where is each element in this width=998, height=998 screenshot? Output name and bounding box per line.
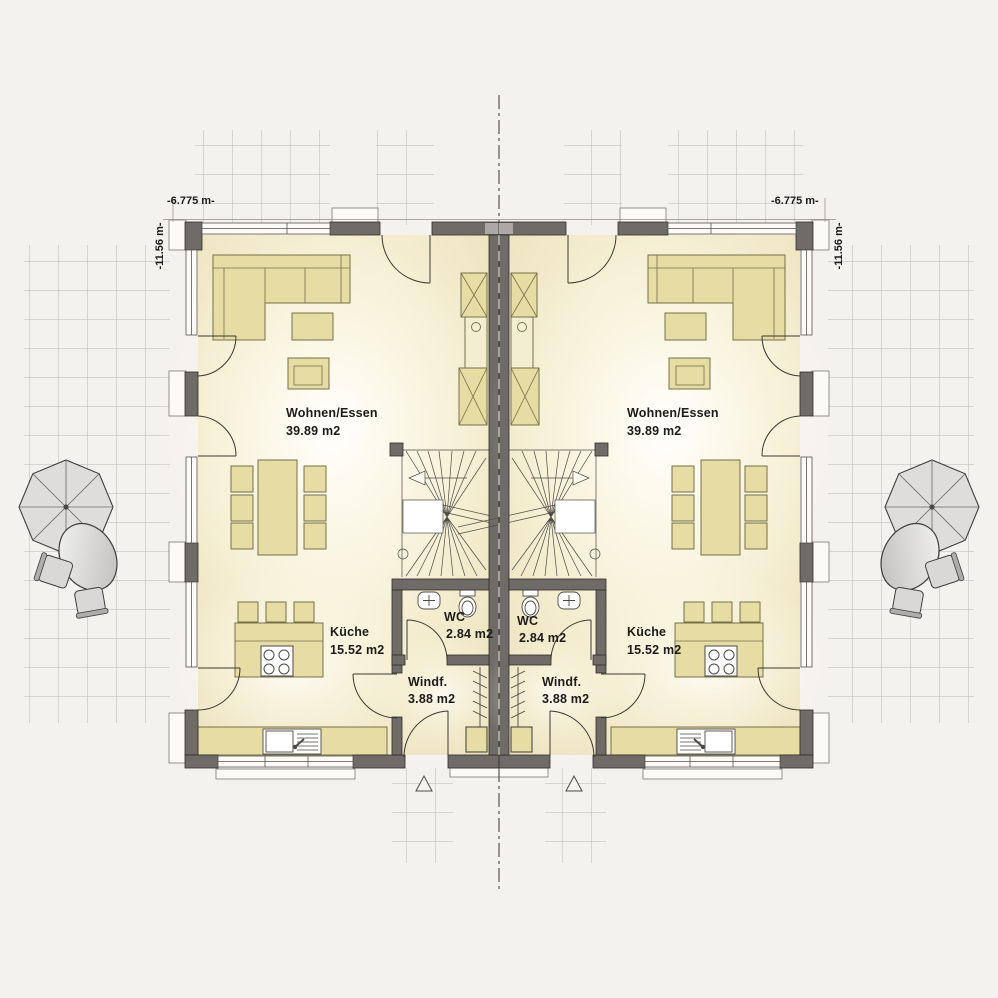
wall bbox=[353, 755, 405, 768]
wall-vestibule-side bbox=[392, 717, 402, 755]
dining-table bbox=[258, 460, 297, 555]
armchair-seat bbox=[294, 366, 322, 385]
wall bbox=[185, 372, 198, 416]
window-sill bbox=[169, 220, 186, 250]
floor-plan-drawing bbox=[0, 0, 998, 998]
entrance-step bbox=[450, 768, 499, 777]
window-sill bbox=[332, 208, 378, 223]
unit-left-drawing bbox=[19, 130, 540, 863]
room-area-living-left: 39.89 m2 bbox=[286, 424, 340, 438]
stair-landing bbox=[403, 500, 443, 533]
dining-chair bbox=[231, 466, 253, 492]
dining-chair bbox=[231, 523, 253, 549]
party-wall-seam bbox=[485, 223, 499, 234]
washbasin bbox=[418, 592, 440, 609]
room-label-vestibule-left: Windf. bbox=[408, 675, 447, 689]
room-area-wc-right: 2.84 m2 bbox=[519, 631, 566, 645]
wall bbox=[185, 710, 198, 755]
wall bbox=[448, 755, 499, 768]
room-area-living-right: 39.89 m2 bbox=[627, 424, 681, 438]
dimension-depth-left: -11.56 m- bbox=[154, 220, 166, 272]
dining-chair bbox=[304, 523, 326, 549]
wall bbox=[185, 543, 198, 582]
wall bbox=[185, 755, 218, 768]
room-label-wc-left: WC bbox=[444, 610, 465, 624]
unit-right-drawing bbox=[458, 130, 979, 863]
room-label-vestibule-right: Windf. bbox=[542, 675, 581, 689]
coffee-table bbox=[292, 313, 333, 340]
room-label-living-left: Wohnen/Essen bbox=[286, 406, 378, 420]
dimension-width-right: -6.775 m- bbox=[771, 195, 819, 207]
paving-grid-top-a bbox=[195, 130, 330, 225]
room-label-kitchen-left: Küche bbox=[330, 625, 369, 639]
room-label-wc-right: WC bbox=[517, 614, 538, 628]
wall-vestibule-top bbox=[392, 655, 405, 665]
wall-vestibule-top bbox=[447, 655, 489, 665]
room-area-wc-left: 2.84 m2 bbox=[446, 627, 493, 641]
dining-chair bbox=[304, 495, 326, 521]
bar-stool bbox=[238, 602, 258, 622]
vestibule-cabinet bbox=[466, 727, 487, 752]
wall bbox=[185, 222, 202, 250]
wall bbox=[330, 222, 380, 235]
dimension-width-left: -6.775 m- bbox=[167, 195, 215, 207]
dining-chair bbox=[231, 495, 253, 521]
bar-stool bbox=[294, 602, 314, 622]
sideboard bbox=[465, 317, 487, 368]
window-sill bbox=[169, 371, 186, 416]
room-area-kitchen-left: 15.52 m2 bbox=[330, 643, 384, 657]
room-area-kitchen-right: 15.52 m2 bbox=[627, 643, 681, 657]
wall-wc-top bbox=[392, 579, 489, 590]
wall-stub bbox=[390, 443, 403, 456]
room-label-kitchen-right: Küche bbox=[627, 625, 666, 639]
dining-chair bbox=[304, 466, 326, 492]
kitchen-sink bbox=[263, 729, 321, 754]
floor-plan-canvas: Wohnen/Essen 39.89 m2 Küche 15.52 m2 WC … bbox=[0, 0, 998, 998]
paving-grid-top-b bbox=[376, 130, 434, 225]
room-label-living-right: Wohnen/Essen bbox=[627, 406, 719, 420]
room-area-vestibule-right: 3.88 m2 bbox=[542, 692, 589, 706]
bar-stool bbox=[266, 602, 286, 622]
window-sill bbox=[169, 542, 186, 582]
terrace-step bbox=[216, 769, 355, 779]
dimension-depth-right: -11.56 m- bbox=[833, 220, 845, 272]
cooktop bbox=[261, 646, 293, 676]
window-sill bbox=[169, 713, 186, 763]
room-area-vestibule-left: 3.88 m2 bbox=[408, 692, 455, 706]
patio-chair bbox=[72, 586, 108, 618]
